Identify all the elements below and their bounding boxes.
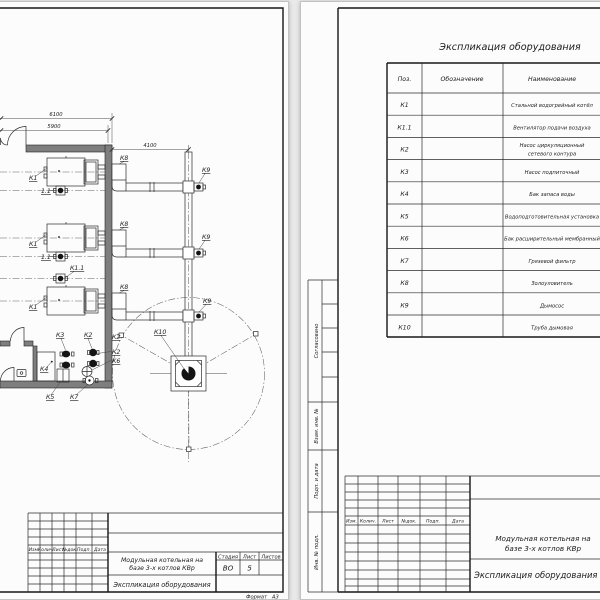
guy-anchor <box>254 332 259 337</box>
format-label: Формат <box>246 595 268 600</box>
inner-door <box>11 328 25 342</box>
pos-k9: К9 <box>400 303 408 310</box>
dimension-5900: 5900 <box>47 124 61 130</box>
sheet-number: 5 <box>247 564 252 573</box>
left-title-block: Изм. Колич. Лист №док. Подп. Дата Модуль… <box>28 513 283 600</box>
flue-row-2 <box>112 230 206 259</box>
stage-value: ВО <box>223 564 234 573</box>
rev-col-list: Лист <box>381 519 394 525</box>
name-k6: Бак расширительный мембранный <box>504 237 600 243</box>
label-k1: К1 <box>29 304 37 311</box>
rev-col-kolich: Колич. <box>360 519 376 525</box>
replace-inv-label: Взам. инв. № <box>314 408 320 443</box>
entrance-door-leaf <box>1 138 8 145</box>
boiler-1 <box>44 156 105 186</box>
flue-row-3 <box>112 293 206 322</box>
pos-k8: К8 <box>400 280 408 287</box>
table-row: К6 Бак расширительный мембранный <box>400 236 600 243</box>
circulation-pumps-k2 <box>88 349 100 368</box>
rev-col-data: Дата <box>93 547 106 553</box>
dimension-6100: 6100 <box>49 112 63 118</box>
label-k9: К9 <box>203 298 211 305</box>
label-k1-1: 1.1 <box>41 188 51 195</box>
equipment-schedule-table: Поз. Обозначение Наименование К1 Стально… <box>387 63 600 337</box>
guy-anchor <box>187 447 192 452</box>
expansion-tank-k6 <box>82 367 92 377</box>
leader-dot <box>51 361 53 363</box>
chimney <box>171 356 206 391</box>
name-k8: Золоуловитель <box>531 281 573 287</box>
label-k3: К3 <box>56 332 64 339</box>
margin-column: Согласовано Взам. инв. № Подп. и дата Ин… <box>308 280 338 592</box>
project-name-line1: Модульная котельная на <box>121 557 203 564</box>
equipment-corner <box>17 349 99 385</box>
table-row: К1.1 Вентилятор подачи воздуха <box>397 125 590 132</box>
project-name-line2: базе 3-х котлов КВр <box>129 564 195 572</box>
rev-col-data: Дата <box>451 519 464 525</box>
doc-title: Экспликация оборудования <box>112 581 210 589</box>
boilers <box>44 156 105 315</box>
name-k3: Насос подпиточный <box>525 170 580 176</box>
label-k8: К8 <box>120 155 128 162</box>
sheet-header: Лист <box>242 555 257 561</box>
dimension-4100: 4100 <box>143 143 157 149</box>
schedule-title: Экспликация оборудования <box>438 41 581 53</box>
air-fans <box>54 186 68 283</box>
col-header-oboznachenie: Обозначение <box>441 75 484 83</box>
pos-k3: К3 <box>400 169 408 176</box>
boiler-2 <box>44 222 105 252</box>
label-k1: К1 <box>29 241 37 248</box>
name-k4: Бак запаса воды <box>529 192 575 198</box>
project-name-line2: базе 3-х котлов КВр <box>505 544 582 553</box>
rev-col-izm: Изм. <box>346 519 357 525</box>
label-k8: К8 <box>120 221 128 228</box>
drawing-workspace: 6100 5900 4100 К1 К1 К1 1.1 1.1 К1.1 К8 … <box>0 0 600 600</box>
table-row: К2 Насос циркуляционный сетевого контура <box>400 143 585 158</box>
table-row: К10 Труба дымовая <box>398 325 572 332</box>
rev-col-ndok: №док. <box>401 519 417 525</box>
label-k8: К8 <box>120 284 128 291</box>
sink <box>17 370 26 377</box>
pos-k5: К5 <box>400 214 408 221</box>
right-sheet-drawing: Согласовано Взам. инв. № Подп. и дата Ин… <box>300 0 600 600</box>
approved-label: Согласовано <box>314 324 320 359</box>
label-k2: К2 <box>112 334 120 341</box>
table-row: К8 Золоуловитель <box>400 280 572 287</box>
label-k2: К2 <box>84 332 92 339</box>
entrance-door <box>8 127 27 146</box>
stage-header: Стадия <box>218 555 238 561</box>
table-row: К1 Стальной водогрейный котёл <box>400 102 593 109</box>
doc-title: Экспликация оборудования <box>473 570 597 580</box>
pos-k7: К7 <box>400 258 408 265</box>
label-k9: К9 <box>202 234 210 241</box>
room-door <box>1 368 15 382</box>
name-k5: Водоподготовительная установка <box>505 215 599 221</box>
table-row: К9 Дымосос <box>400 303 564 310</box>
label-k1-1: 1.1 <box>41 254 51 261</box>
name-k2-line1: Насос циркуляционный <box>520 143 585 149</box>
label-k2: К2 <box>112 349 120 356</box>
flue-row-1 <box>112 164 206 193</box>
table-row: К5 Водоподготовительная установка <box>400 214 599 221</box>
left-sheet-drawing: 6100 5900 4100 К1 К1 К1 1.1 1.1 К1.1 К8 … <box>0 0 290 600</box>
name-k9: Дымосос <box>539 304 564 310</box>
flue-rows <box>112 164 206 322</box>
name-k10: Труба дымовая <box>531 326 573 332</box>
label-k10: К10 <box>154 329 166 336</box>
pos-k2: К2 <box>400 147 408 154</box>
rev-col-podp: Подп. <box>77 547 91 553</box>
boiler-3 <box>44 285 105 315</box>
feed-pumps-k3 <box>60 351 74 369</box>
name-k7: Грязевой фильтр <box>529 259 577 265</box>
pos-k1-1: К1.1 <box>397 125 411 132</box>
name-k1-1: Вентилятор подачи воздуха <box>513 126 590 132</box>
pos-k10: К10 <box>398 325 410 332</box>
label-k1-1-full: К1.1 <box>70 265 84 272</box>
label-k1: К1 <box>29 175 37 182</box>
col-header-naimenovanie: Наименование <box>528 76 576 83</box>
project-name-line1: Модульная котельная на <box>495 534 590 543</box>
label-k9: К9 <box>202 167 210 174</box>
label-k7: К7 <box>70 394 78 401</box>
pos-k1: К1 <box>400 102 408 109</box>
sign-date-label: Подп. и дата <box>314 463 320 498</box>
name-k1: Стальной водогрейный котёл <box>511 103 593 109</box>
format-value: А3 <box>271 595 279 600</box>
sheets-header: Листов <box>260 555 280 561</box>
sheet-frame <box>338 8 600 592</box>
table-row: К3 Насос подпиточный <box>400 169 580 176</box>
label-k5: К5 <box>46 394 54 401</box>
inv-original-label: Инв. № подл. <box>314 534 320 570</box>
pos-k4: К4 <box>400 191 408 198</box>
table-row: К7 Грязевой фильтр <box>400 258 576 265</box>
label-k6: К6 <box>112 358 120 365</box>
pos-k6: К6 <box>400 236 408 243</box>
name-k2-line2: сетевого контура <box>528 152 576 158</box>
col-header-pos: Поз. <box>398 76 412 83</box>
table-row: К4 Бак запаса воды <box>400 191 574 198</box>
right-title-block: Изм. Колич. Лист №док. Подп. Дата Модуль… <box>345 476 600 592</box>
label-k4: К4 <box>40 366 48 373</box>
rev-col-ndok: №док. <box>62 547 78 553</box>
rev-col-podp: Подп. <box>426 519 440 525</box>
